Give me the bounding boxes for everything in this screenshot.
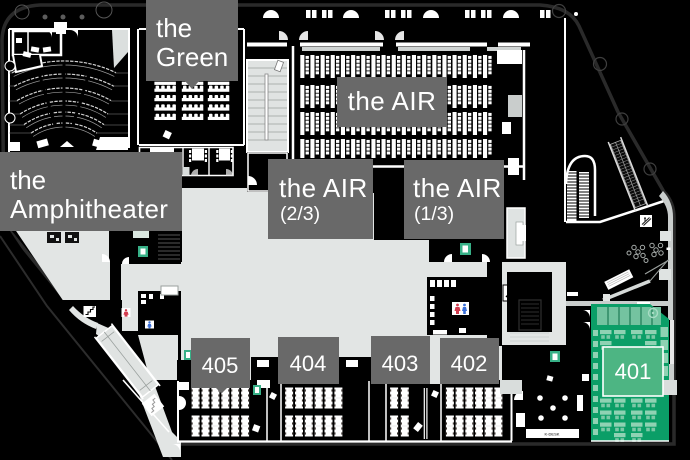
- svg-text:the: the: [10, 165, 46, 195]
- svg-text:404: 404: [290, 351, 327, 376]
- svg-text:the: the: [156, 13, 192, 43]
- svg-text:401: 401: [615, 359, 652, 384]
- svg-text:the AIR: the AIR: [279, 173, 368, 203]
- svg-text:K-DESK: K-DESK: [545, 432, 560, 437]
- svg-text:Amphitheater: Amphitheater: [10, 194, 168, 224]
- svg-text:the AIR: the AIR: [413, 173, 502, 203]
- svg-text:(1/3): (1/3): [414, 203, 454, 225]
- svg-text:(2/3): (2/3): [280, 203, 320, 225]
- svg-text:402: 402: [451, 351, 488, 376]
- svg-text:405: 405: [202, 353, 239, 378]
- svg-text:403: 403: [382, 351, 419, 376]
- svg-text:the AIR: the AIR: [348, 86, 437, 116]
- svg-text:Green: Green: [156, 42, 228, 72]
